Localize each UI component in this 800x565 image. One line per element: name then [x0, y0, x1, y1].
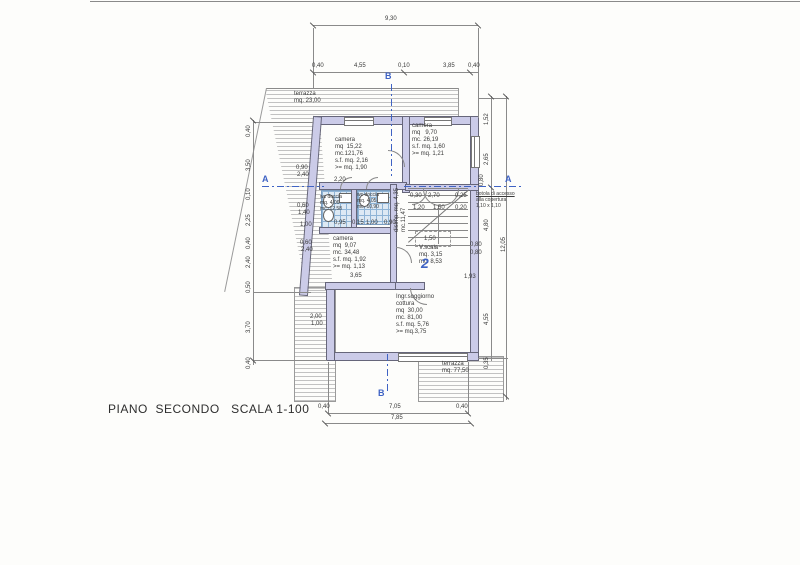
dim-line-bottom-inner [328, 413, 468, 414]
dimension-label: 1,40 [298, 210, 310, 217]
dim-line-top-segments [313, 72, 478, 73]
dimension-label: 0,95 [334, 220, 346, 227]
wall-top [316, 117, 478, 124]
dimension-label: 2,70 [428, 193, 440, 200]
dimension-label: 2,40 [297, 172, 309, 179]
dim-line-top-overall [313, 25, 478, 26]
witness-line [253, 292, 311, 293]
room-label-terrazza-bassa: terrazzamq. 77,50 [442, 361, 469, 375]
dimension-label: 0,50 [246, 281, 253, 293]
section-marker: B [385, 71, 392, 81]
dimension-label: 7,85 [391, 415, 403, 422]
section-marker: B [378, 388, 385, 398]
dimension-label: 0,40 [456, 404, 468, 411]
dimension-label: 3,70 [246, 321, 253, 333]
dimension-label: 0,80 [479, 174, 486, 186]
dimension-label: 2,65 [484, 153, 491, 165]
dimension-label: 0,80 [470, 242, 482, 249]
dimension-label: 0,40 [246, 125, 253, 137]
room-label-terrazza-top: terrazzamq. 23,00 [294, 91, 321, 105]
dimension-label: 0,90 [296, 165, 308, 172]
dimension-label: 0,40 [318, 404, 330, 411]
apartment-number: 2 [421, 255, 429, 271]
dimension-label: 2,00 [310, 314, 322, 321]
door-camera3 [396, 247, 412, 263]
terrace-right-edge [458, 88, 459, 120]
dimension-label: 0,80 [470, 250, 482, 257]
dimension-label: 7,05 [389, 404, 401, 411]
room-label-camera-bassa: cameramq 9,07mc. 34,48s.f. mq. 1,92>= mq… [333, 236, 366, 271]
dimension-label: 12,05 [501, 237, 508, 252]
dimension-label: 0,90 [384, 220, 396, 227]
wall-camera-stair-divider [403, 117, 409, 192]
dimension-label: 2,25 [246, 214, 253, 226]
dimension-label: 1,50 [433, 205, 445, 212]
dimension-label: 0,15 [352, 220, 364, 227]
section-marker: A [505, 174, 512, 184]
dimension-label: 0,10 [398, 63, 410, 70]
dimension-label: 0,25 [455, 193, 467, 200]
wall-left-lower [327, 288, 334, 360]
dimension-label: 9,30 [385, 16, 397, 23]
dimension-label: 1,00 [311, 321, 323, 328]
dimension-label: 2,40 [246, 256, 253, 268]
dimension-label: 3,65 [350, 273, 362, 280]
window-right-wall [471, 136, 480, 168]
dimension-label: 4,55 [484, 313, 491, 325]
dimension-label: 1,93 [464, 274, 476, 281]
dimension-label: 1,50 [424, 236, 436, 243]
window-camera1 [344, 117, 374, 126]
dimension-label: 0,60 [300, 240, 312, 247]
dimension-label: 0,20 [455, 205, 467, 212]
witness-line [478, 358, 508, 359]
door-wc-right [366, 177, 378, 189]
dimension-label: 4,55 [354, 63, 366, 70]
room-label-wc-doccia-destra: wc docciamq. 4,05mc. 10,90 [357, 192, 379, 210]
dimension-label: 1,20 [413, 205, 425, 212]
witness-line [253, 360, 327, 361]
witness-line [313, 28, 314, 88]
scan-edge-line [90, 1, 800, 2]
wall-below-wc [320, 228, 396, 233]
dimension-label: 0,40 [312, 63, 324, 70]
dim-line-bottom-overall [325, 423, 471, 424]
dimension-label: 0,40 [246, 237, 253, 249]
floor-plan-drawing: BAAB terrazzamq. 23,00cameramq 15,22mc.1… [0, 0, 800, 565]
dim-line-right-chain [491, 96, 492, 361]
section-line-B-bottom [387, 354, 388, 392]
dimension-label: 0,10 [246, 188, 253, 200]
room-label-botola-nota: botola di accessoalla copertura1,10 x 1,… [476, 191, 515, 209]
section-marker: A [262, 174, 269, 184]
wall-camera3-bottom [326, 283, 396, 289]
dimension-label: 0,40 [246, 357, 253, 369]
witness-line [253, 122, 313, 123]
dimension-label: 1,52 [484, 113, 491, 125]
dimension-label: 2,20 [334, 177, 346, 184]
dimension-label: 4,80 [484, 219, 491, 231]
room-label-disimpegno: disimp. mq. 4,35mc.11,47 [394, 188, 408, 232]
dimension-label: 3,85 [443, 63, 455, 70]
dim-line-left-chain [253, 120, 254, 365]
section-line-A-left [262, 186, 324, 187]
terrace-top-edge [266, 88, 458, 89]
dimension-label: 0,35 [484, 357, 491, 369]
room-label-camera-grande: cameramq 15,22mc.121,76s.f. mq. 2,16>= m… [335, 137, 368, 172]
room-label-soggiorno: Ingr.soggiornocotturamq 30,00mc. 81,00s.… [396, 294, 434, 336]
room-label-wc-doccia-sinistra: wc docciamq. 4,06mc. 12,58 [320, 194, 342, 212]
dimension-label: 1,00 [300, 222, 312, 229]
section-line-A-right [404, 186, 524, 187]
room-label-camera-destra: cameramq 9,70mc. 26,19s.f. mq. 1,60>= mq… [412, 123, 445, 158]
dimension-label: 1,00 [366, 220, 378, 227]
section-line-B-top [391, 84, 392, 176]
witness-line [478, 28, 479, 118]
dimension-label: 2,40 [301, 247, 313, 254]
dimension-label: 3,50 [246, 159, 253, 171]
dimension-label: 0,30 [410, 193, 422, 200]
drawing-title: PIANO SECONDO SCALA 1-100 [108, 402, 309, 416]
dimension-label: 0,40 [468, 63, 480, 70]
dimension-label: 0,60 [297, 203, 309, 210]
